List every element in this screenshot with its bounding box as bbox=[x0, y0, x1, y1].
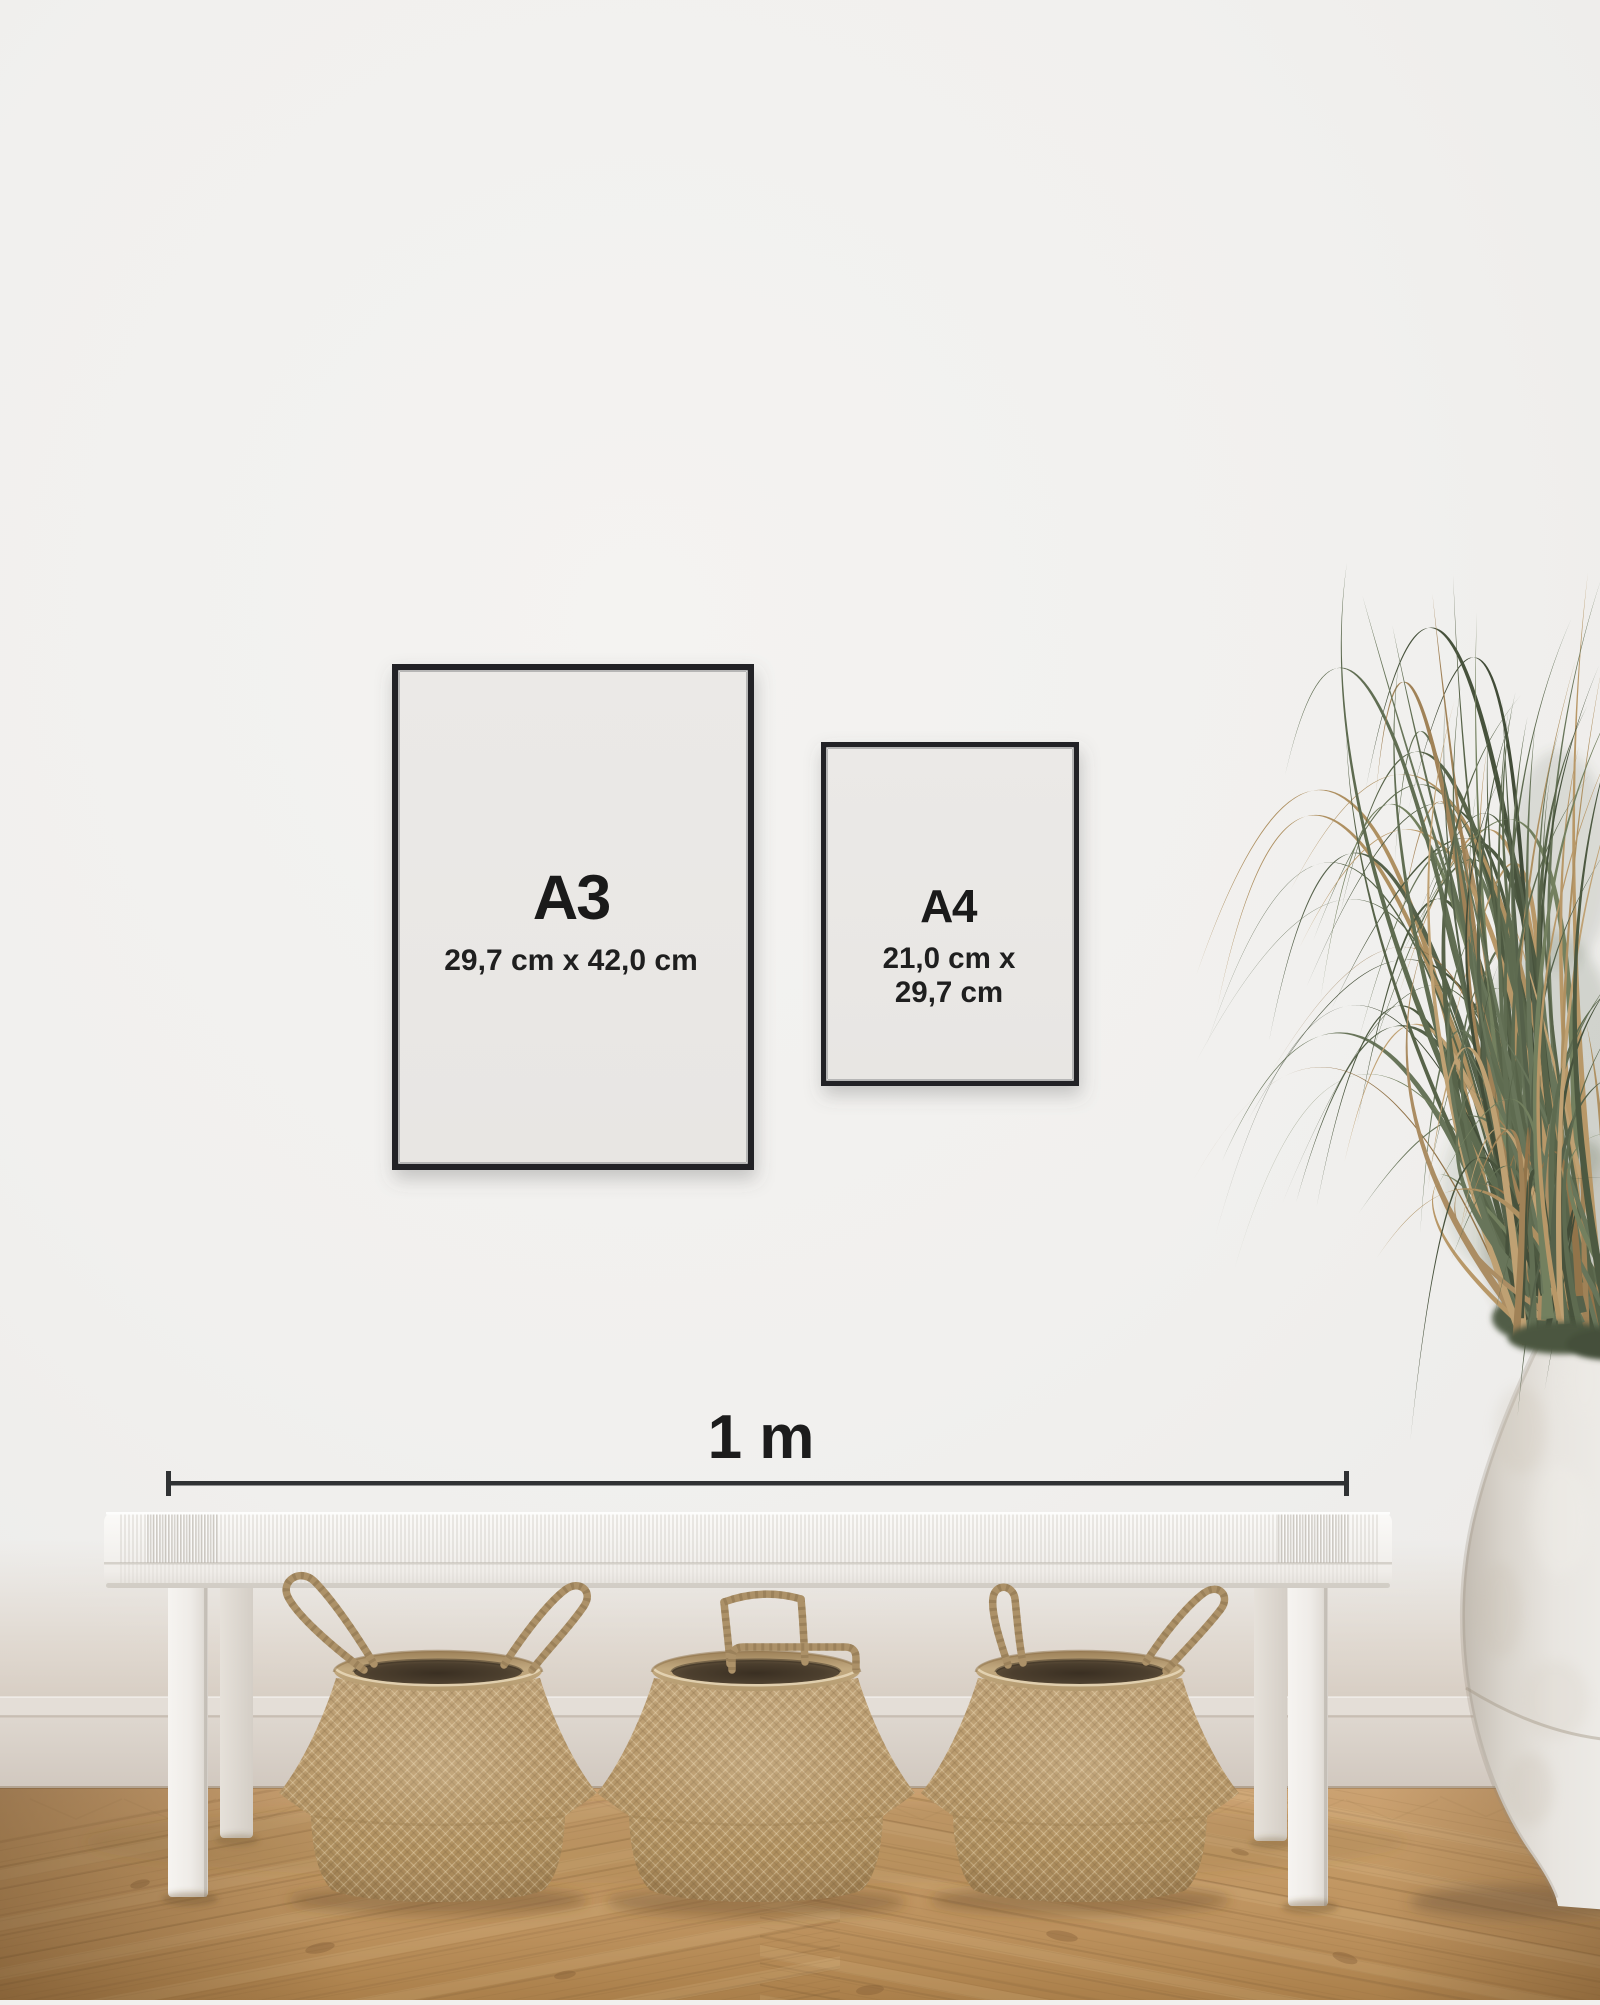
svg-text:1 m: 1 m bbox=[708, 1403, 815, 1472]
svg-text:A4: A4 bbox=[920, 880, 978, 932]
svg-text:21,0 cm x: 21,0 cm x bbox=[883, 942, 1016, 975]
svg-text:29,7 cm: 29,7 cm bbox=[895, 976, 1003, 1009]
svg-text:A3: A3 bbox=[533, 863, 610, 933]
svg-text:29,7 cm x 42,0 cm: 29,7 cm x 42,0 cm bbox=[444, 944, 698, 977]
